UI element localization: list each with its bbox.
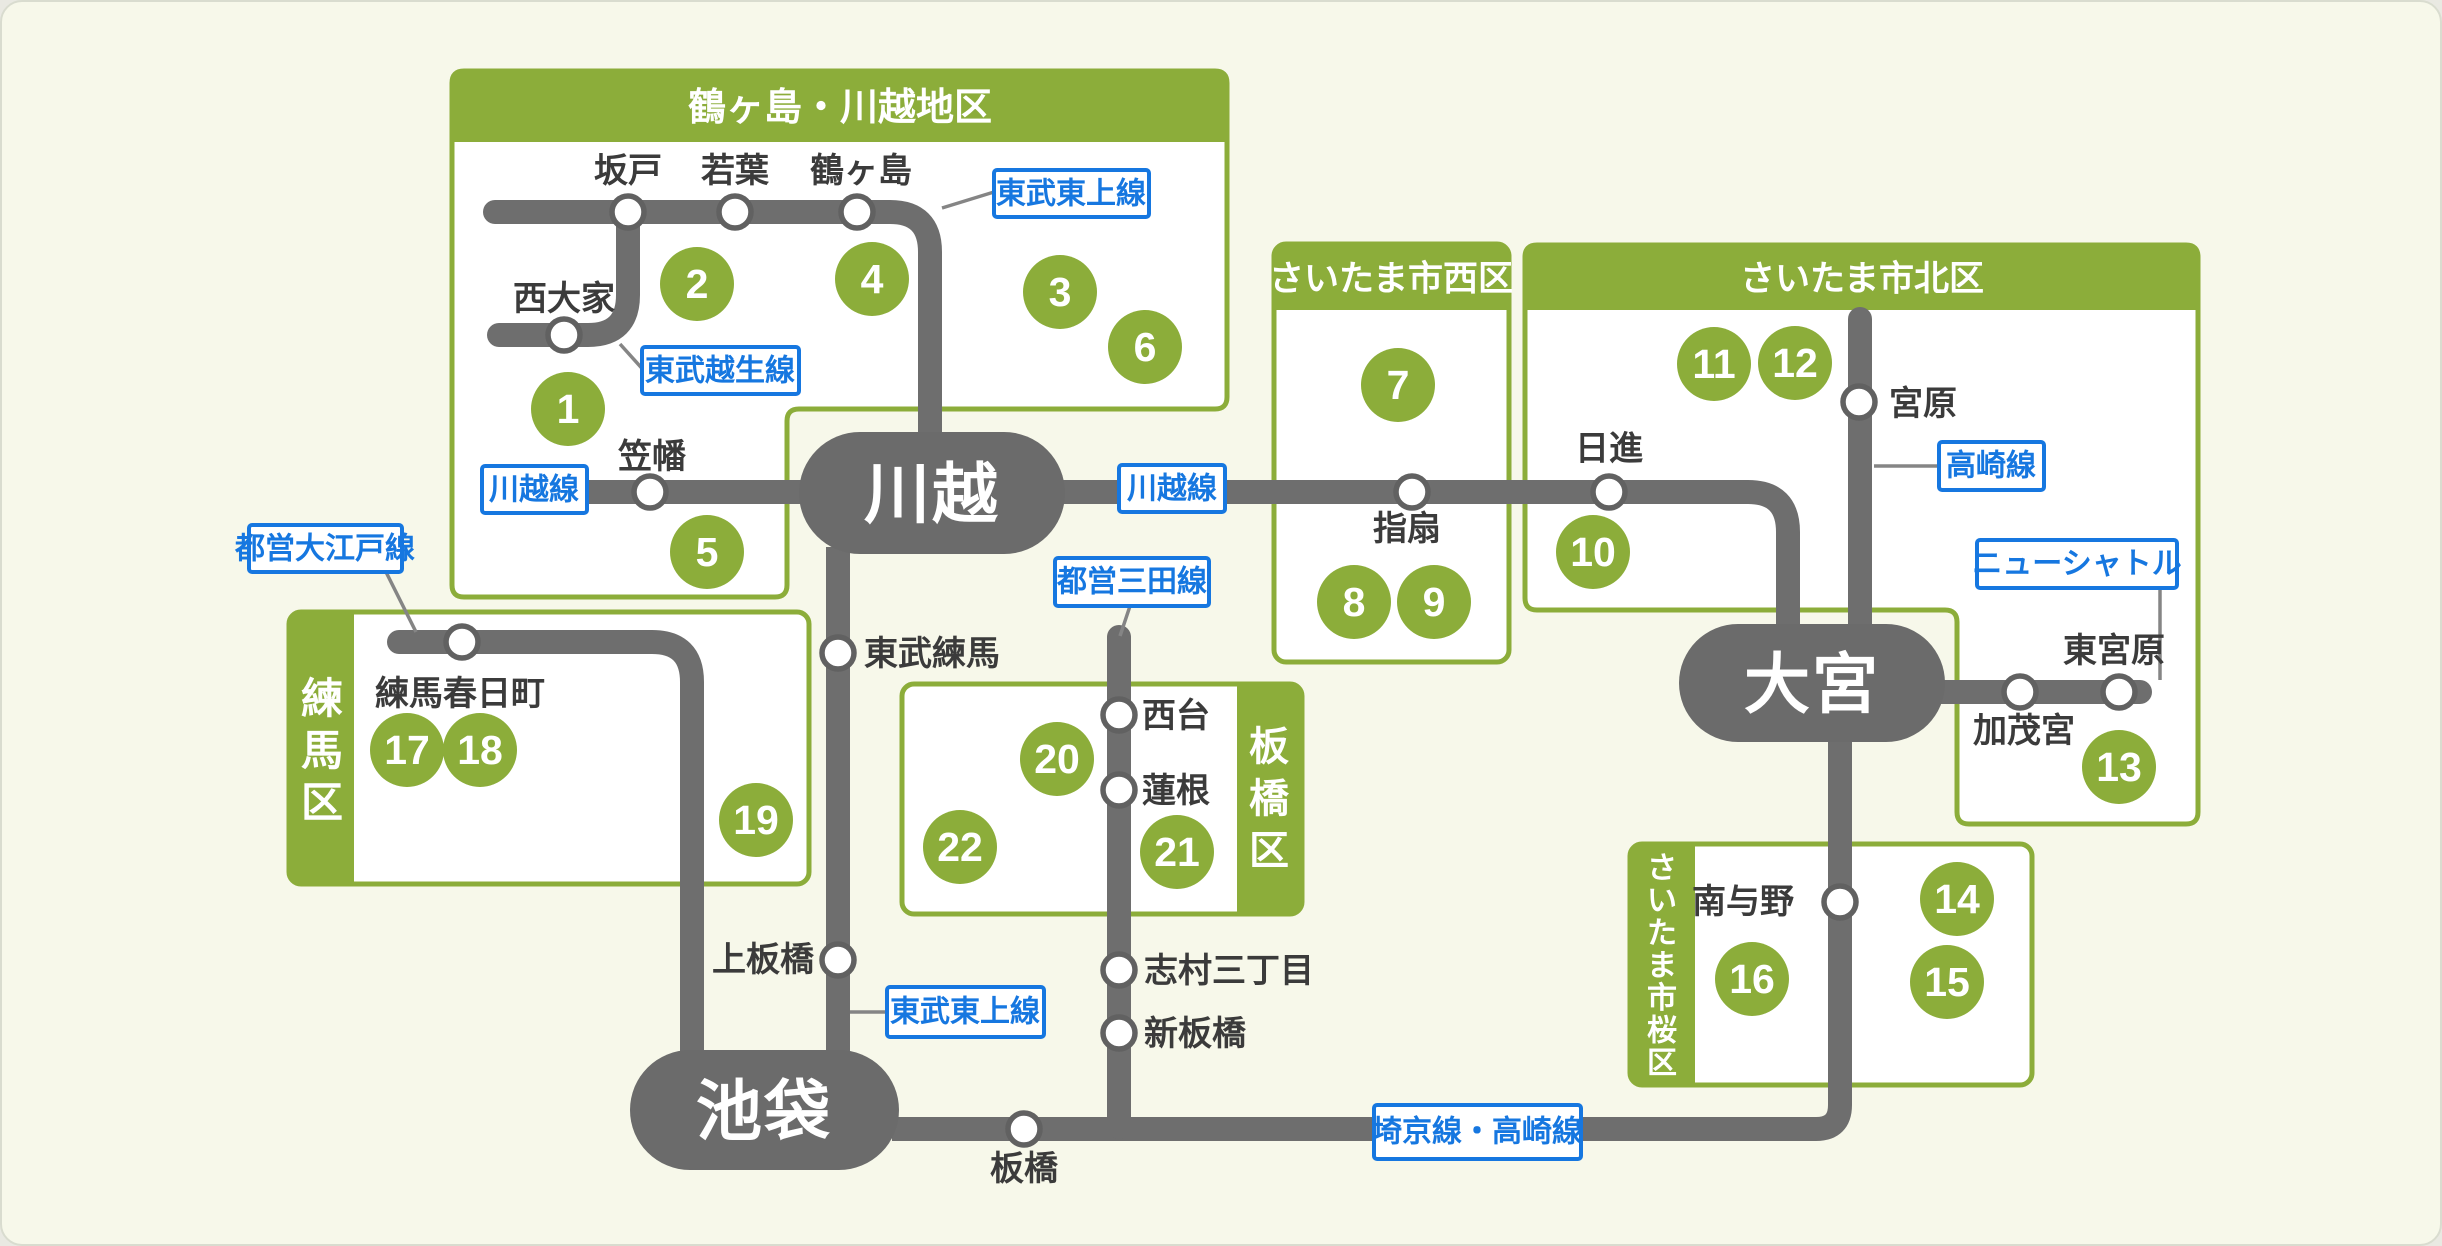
hub-kawagoe-label: 川越 xyxy=(864,457,1000,531)
line-label-saikyo-takasaki: 埼京線・高崎線 xyxy=(1372,1105,1582,1159)
marker-18: 18 xyxy=(443,713,517,787)
station-label-nishidai: 西台 xyxy=(1142,697,1210,735)
svg-text:東武東上線: 東武東上線 xyxy=(890,995,1040,1029)
station-label-miyahara: 宮原 xyxy=(1889,385,1957,423)
station-dot-nishi-oya xyxy=(548,319,580,351)
marker-4: 4 xyxy=(835,242,909,316)
marker-3: 3 xyxy=(1023,255,1097,329)
station-dot-nerima-kasugacho xyxy=(446,626,478,658)
svg-text:東武越生線: 東武越生線 xyxy=(645,354,795,388)
station-label-wakaba: 若葉 xyxy=(701,152,770,190)
station-label-itabashi: 板橋 xyxy=(990,1150,1058,1188)
station-label-kami-itabashi: 上板橋 xyxy=(712,941,814,979)
station-label-shimura-sanchome: 志村三丁目 xyxy=(1144,952,1314,990)
marker-20: 20 xyxy=(1020,722,1094,796)
station-label-tsurugashima: 鶴ヶ島 xyxy=(810,152,912,190)
station-dot-wakaba xyxy=(719,196,751,228)
marker-1: 1 xyxy=(531,372,605,446)
line-label-kawagoe-east: 川越線 xyxy=(1119,465,1225,512)
map-svg: 川越 大宮 池袋 東武東上線 東武越生線 川越線 川越線 xyxy=(2,2,2442,1246)
line-label-new-shuttle: ニューシャトル xyxy=(1972,540,2181,588)
line-label-tobu-ogose: 東武越生線 xyxy=(642,347,799,394)
line-label-kawagoe-west: 川越線 xyxy=(482,466,587,513)
svg-text:10: 10 xyxy=(1570,529,1616,575)
svg-text:高崎線: 高崎線 xyxy=(1946,449,2036,483)
svg-text:2: 2 xyxy=(686,261,709,307)
marker-9: 9 xyxy=(1397,565,1471,639)
marker-8: 8 xyxy=(1317,565,1391,639)
station-dot-miyahara xyxy=(1843,386,1875,418)
svg-text:5: 5 xyxy=(696,529,719,575)
station-dot-itabashi xyxy=(1008,1113,1040,1145)
svg-text:15: 15 xyxy=(1924,959,1970,1005)
transit-map: 川越 大宮 池袋 東武東上線 東武越生線 川越線 川越線 xyxy=(0,0,2442,1246)
svg-text:3: 3 xyxy=(1049,269,1072,315)
svg-text:都営三田線: 都営三田線 xyxy=(1056,565,1207,599)
svg-text:川越線: 川越線 xyxy=(489,473,579,507)
svg-text:22: 22 xyxy=(937,824,983,870)
hub-omiya-label: 大宮 xyxy=(1744,647,1880,721)
svg-text:16: 16 xyxy=(1729,956,1775,1002)
marker-19: 19 xyxy=(719,783,793,857)
svg-text:19: 19 xyxy=(733,797,779,843)
svg-text:6: 6 xyxy=(1134,324,1157,370)
station-dot-nishidai xyxy=(1103,699,1135,731)
station-label-tobu-nerima: 東武練馬 xyxy=(864,635,1000,673)
svg-text:12: 12 xyxy=(1772,340,1818,386)
station-label-nerima-kasugacho: 練馬春日町 xyxy=(375,675,545,713)
station-dot-sashiogi xyxy=(1396,476,1428,508)
marker-12: 12 xyxy=(1758,326,1832,400)
marker-2: 2 xyxy=(660,247,734,321)
station-dot-tobu-nerima xyxy=(822,637,854,669)
region-title-saitama-nishi: さいたま市西区 xyxy=(1269,260,1513,299)
station-label-higashi-miyahara: 東宮原 xyxy=(2063,632,2165,670)
svg-text:13: 13 xyxy=(2096,744,2142,790)
line-label-tobu-tojo-north: 東武東上線 xyxy=(994,170,1149,217)
line-label-takasaki: 高崎線 xyxy=(1939,442,2044,490)
station-dot-shin-itabashi xyxy=(1103,1017,1135,1049)
line-label-tobu-tojo-south: 東武東上線 xyxy=(887,987,1044,1037)
station-dot-hasune xyxy=(1103,774,1135,806)
region-title-itabashi: 板橋区 xyxy=(1249,725,1289,873)
station-label-hasune: 蓮根 xyxy=(1142,772,1210,810)
region-title-nerima: 練馬区 xyxy=(301,675,343,826)
station-dot-kami-itabashi xyxy=(822,944,854,976)
station-dot-kasahata xyxy=(634,476,666,508)
region-title-tsurugashima-kawagoe: 鶴ヶ島・川越地区 xyxy=(688,87,992,129)
svg-text:1: 1 xyxy=(557,386,580,432)
marker-16: 16 xyxy=(1715,942,1789,1016)
region-title-saitama-sakura: さいたま市桜区 xyxy=(1647,852,1677,1080)
region-title-saitama-kita: さいたま市北区 xyxy=(1740,260,1984,299)
station-dot-nisshin xyxy=(1593,476,1625,508)
station-dot-tsurugashima xyxy=(841,196,873,228)
svg-text:11: 11 xyxy=(1692,341,1735,387)
marker-11: 11 xyxy=(1677,327,1751,401)
svg-text:川越線: 川越線 xyxy=(1127,472,1217,506)
svg-text:7: 7 xyxy=(1387,362,1410,408)
station-dot-higashi-miyahara xyxy=(2103,676,2135,708)
line-label-toei-mita: 都営三田線 xyxy=(1055,558,1209,606)
hub-ikebukuro-label: 池袋 xyxy=(696,1074,832,1148)
marker-10: 10 xyxy=(1556,515,1630,589)
svg-text:都営大江戸線: 都営大江戸線 xyxy=(234,532,415,566)
station-dot-sakado xyxy=(612,196,644,228)
station-dot-kamonomiya xyxy=(2004,676,2036,708)
svg-text:14: 14 xyxy=(1934,876,1980,922)
marker-14: 14 xyxy=(1920,862,1994,936)
station-label-sashiogi: 指扇 xyxy=(1373,510,1441,548)
marker-7: 7 xyxy=(1361,348,1435,422)
station-label-kasahata: 笠幡 xyxy=(618,438,687,476)
marker-17: 17 xyxy=(370,713,444,787)
marker-21: 21 xyxy=(1140,815,1214,889)
svg-text:8: 8 xyxy=(1343,579,1366,625)
marker-13: 13 xyxy=(2082,730,2156,804)
station-label-nishi-oya: 西大家 xyxy=(513,280,615,318)
station-label-sakado: 坂戸 xyxy=(594,152,662,190)
svg-text:17: 17 xyxy=(384,727,430,773)
svg-text:東武東上線: 東武東上線 xyxy=(996,177,1146,211)
line-label-toei-oedo: 都営大江戸線 xyxy=(234,525,415,572)
station-label-kamonomiya: 加茂宮 xyxy=(1973,712,2075,750)
station-label-minami-yono: 南与野 xyxy=(1692,883,1794,921)
svg-text:4: 4 xyxy=(861,256,884,302)
svg-text:20: 20 xyxy=(1034,736,1080,782)
svg-text:埼京線・高崎線: 埼京線・高崎線 xyxy=(1372,1115,1582,1149)
station-dot-minami-yono xyxy=(1824,886,1856,918)
svg-text:18: 18 xyxy=(457,727,503,773)
marker-15: 15 xyxy=(1910,945,1984,1019)
svg-text:21: 21 xyxy=(1154,829,1200,875)
station-label-nisshin: 日進 xyxy=(1575,430,1643,468)
marker-6: 6 xyxy=(1108,310,1182,384)
svg-text:9: 9 xyxy=(1423,579,1446,625)
svg-text:ニューシャトル: ニューシャトル xyxy=(1972,548,2181,581)
station-dot-shimura-sanchome xyxy=(1103,954,1135,986)
station-label-shin-itabashi: 新板橋 xyxy=(1144,1015,1246,1053)
marker-22: 22 xyxy=(923,810,997,884)
marker-5: 5 xyxy=(670,515,744,589)
